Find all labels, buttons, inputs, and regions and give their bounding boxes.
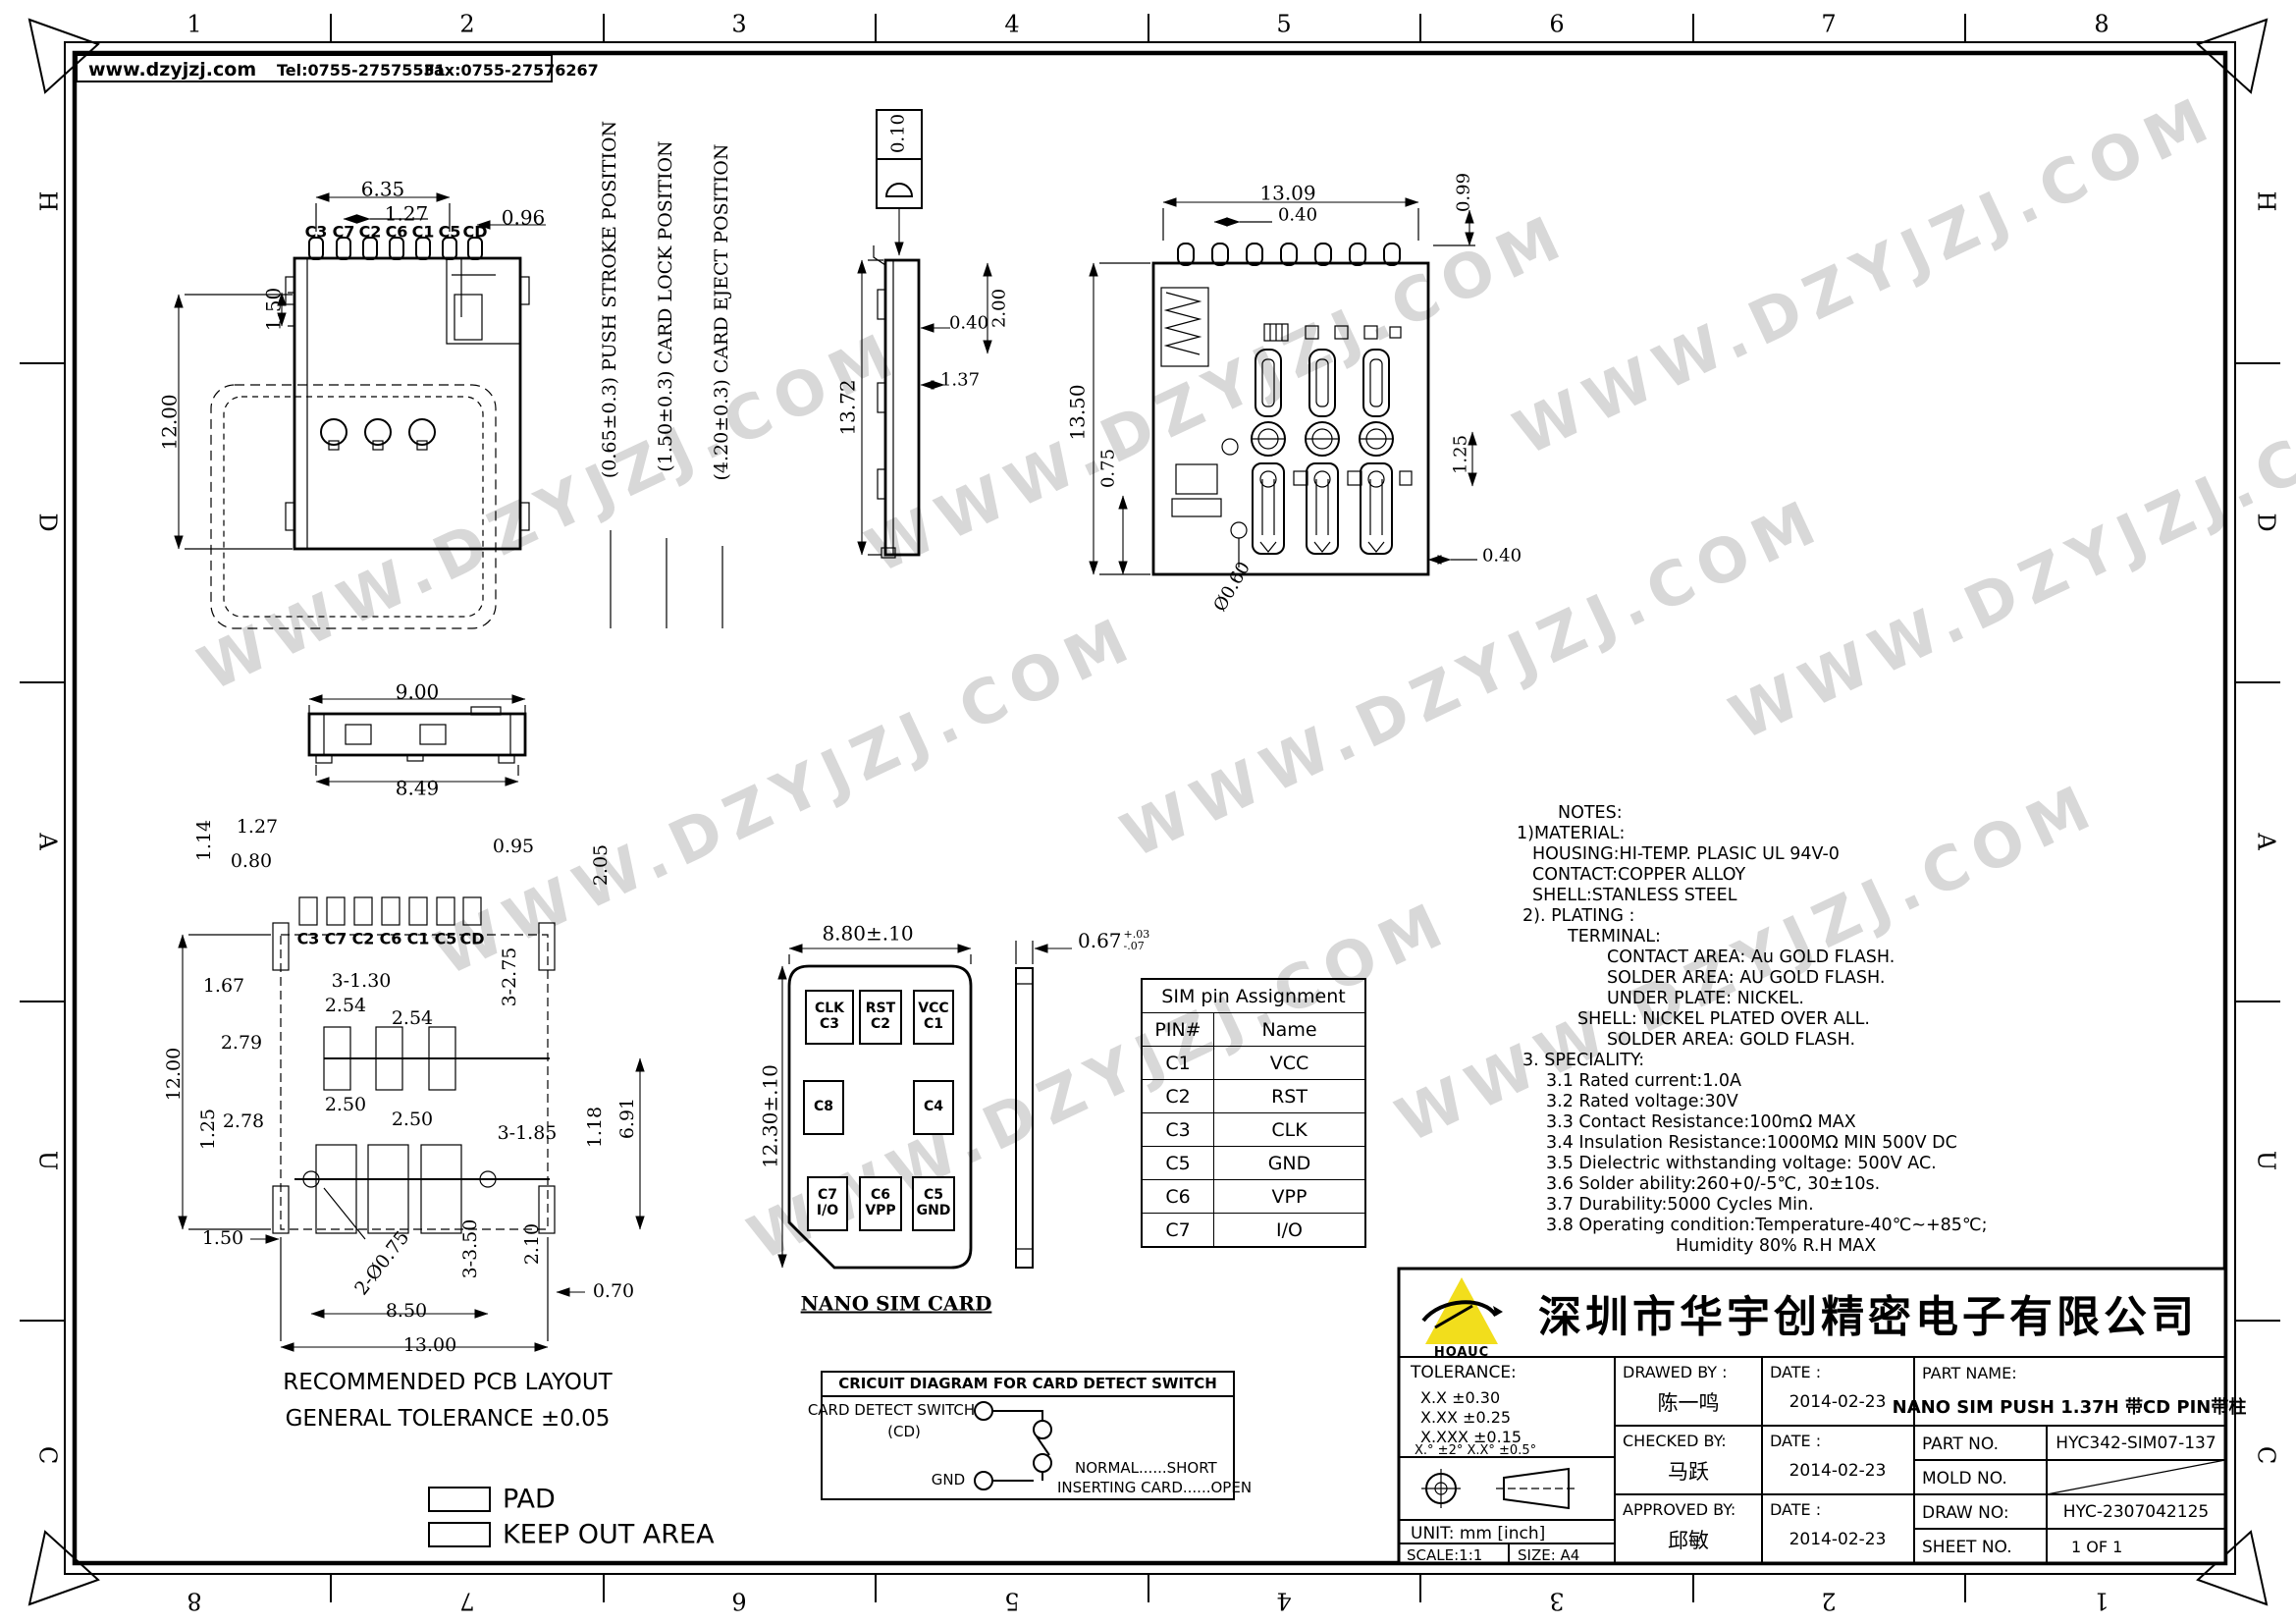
name-cell: I/O xyxy=(1214,1214,1364,1246)
approved-date: 2014-02-23 xyxy=(1789,1530,1887,1549)
scale-text: SCALE:1:1 xyxy=(1407,1546,1482,1564)
part-no-value: HYC342-SIM07-137 xyxy=(2056,1434,2216,1453)
tolerance-title: TOLERANCE: xyxy=(1411,1363,1517,1382)
legend-pad-label: PAD xyxy=(503,1485,556,1515)
pin-cell: C6 xyxy=(1143,1180,1214,1213)
table-row: C3 CLK xyxy=(1143,1113,1364,1147)
sheet-no-value: 1 OF 1 xyxy=(2071,1538,2122,1556)
checked-by-label: CHECKED BY: xyxy=(1623,1432,1727,1450)
bottom-view-linework xyxy=(1094,202,1477,574)
sim-table-col2: Name xyxy=(1214,1013,1364,1046)
pcb-layout-linework xyxy=(183,897,640,1546)
mold-no-label: MOLD NO. xyxy=(1922,1469,2007,1489)
thickness-dim: 0.67 +.03 -.07 xyxy=(1078,929,1149,952)
drawed-date: 2014-02-23 xyxy=(1789,1392,1887,1412)
tel-text: Tel:0755-27575531 xyxy=(277,61,446,80)
table-row: C6 VPP xyxy=(1143,1180,1364,1214)
draw-no-label: DRAW NO: xyxy=(1922,1503,2009,1523)
name-cell: GND xyxy=(1214,1147,1364,1179)
pin-cell: C2 xyxy=(1143,1080,1214,1112)
circuit-linework xyxy=(822,1372,1234,1499)
name-cell: CLK xyxy=(1214,1113,1364,1146)
table-row: C7 I/O xyxy=(1143,1214,1364,1246)
name-cell: VPP xyxy=(1214,1180,1364,1213)
approved-by-label: APPROVED BY: xyxy=(1623,1500,1735,1519)
thickness-minus: -.07 xyxy=(1124,941,1150,952)
date-label: DATE : xyxy=(1770,1432,1821,1450)
side-view-linework xyxy=(862,110,988,558)
part-no-label: PART NO. xyxy=(1922,1435,1999,1454)
thickness-main: 0.67 xyxy=(1078,929,1122,952)
size-text: SIZE: A4 xyxy=(1518,1546,1579,1564)
table-row: C5 GND xyxy=(1143,1147,1364,1180)
sim-table-col1: PIN# xyxy=(1143,1013,1214,1046)
approved-by-name: 邱敏 xyxy=(1668,1525,1709,1554)
part-name-value: NANO SIM PUSH 1.37H 带CD PIN带柱 xyxy=(1893,1393,2247,1419)
logo-text: HOAUC xyxy=(1434,1345,1489,1360)
top-view-linework xyxy=(179,197,722,628)
checked-by-name: 马跃 xyxy=(1668,1456,1709,1486)
name-cell: VCC xyxy=(1214,1047,1364,1079)
sim-pin-table: SIM pin Assignment PIN# Name C1 VCC C2 R… xyxy=(1141,978,1366,1248)
date-label: DATE : xyxy=(1770,1500,1821,1519)
unit-text: UNIT: mm [inch] xyxy=(1411,1524,1545,1543)
company-name: 深圳市华宇创精密电子有限公司 xyxy=(1538,1281,2198,1344)
tolerance-row: X.X ±0.30 xyxy=(1420,1388,1500,1407)
table-row: C2 RST xyxy=(1143,1080,1364,1113)
pin-cell: C1 xyxy=(1143,1047,1214,1079)
pin-cell: C5 xyxy=(1143,1147,1214,1179)
part-name-label: PART NAME: xyxy=(1922,1364,2017,1382)
nano-sim-linework xyxy=(782,941,1072,1268)
checked-date: 2014-02-23 xyxy=(1789,1461,1887,1481)
drawed-by-name: 陈一鸣 xyxy=(1658,1387,1720,1417)
tolerance-row: X.XX ±0.25 xyxy=(1420,1408,1511,1427)
legend-keepout-label: KEEP OUT AREA xyxy=(503,1520,715,1550)
sheet-no-label: SHEET NO. xyxy=(1922,1538,2012,1557)
website-text: www.dzyjzj.com xyxy=(88,59,256,81)
pin-cell: C7 xyxy=(1143,1214,1214,1246)
table-row: C1 VCC xyxy=(1143,1047,1364,1080)
draw-no-value: HYC-2307042125 xyxy=(2063,1502,2209,1522)
tolerance-angles: X.° ±2° X.X° ±0.5° xyxy=(1415,1443,1536,1458)
name-cell: RST xyxy=(1214,1080,1364,1112)
drawing-sheet: WWW.DZYJZJ.COMWWW.DZYJZJ.COMWWW.DZYJZJ.C… xyxy=(0,0,2296,1624)
date-label: DATE : xyxy=(1770,1363,1821,1381)
pin-cell: C3 xyxy=(1143,1113,1214,1146)
front-view-linework xyxy=(309,699,525,782)
fax-text: Fax:0755-27576267 xyxy=(424,61,599,80)
sim-table-title: SIM pin Assignment xyxy=(1143,980,1364,1013)
drawed-by-label: DRAWED BY : xyxy=(1623,1363,1728,1381)
